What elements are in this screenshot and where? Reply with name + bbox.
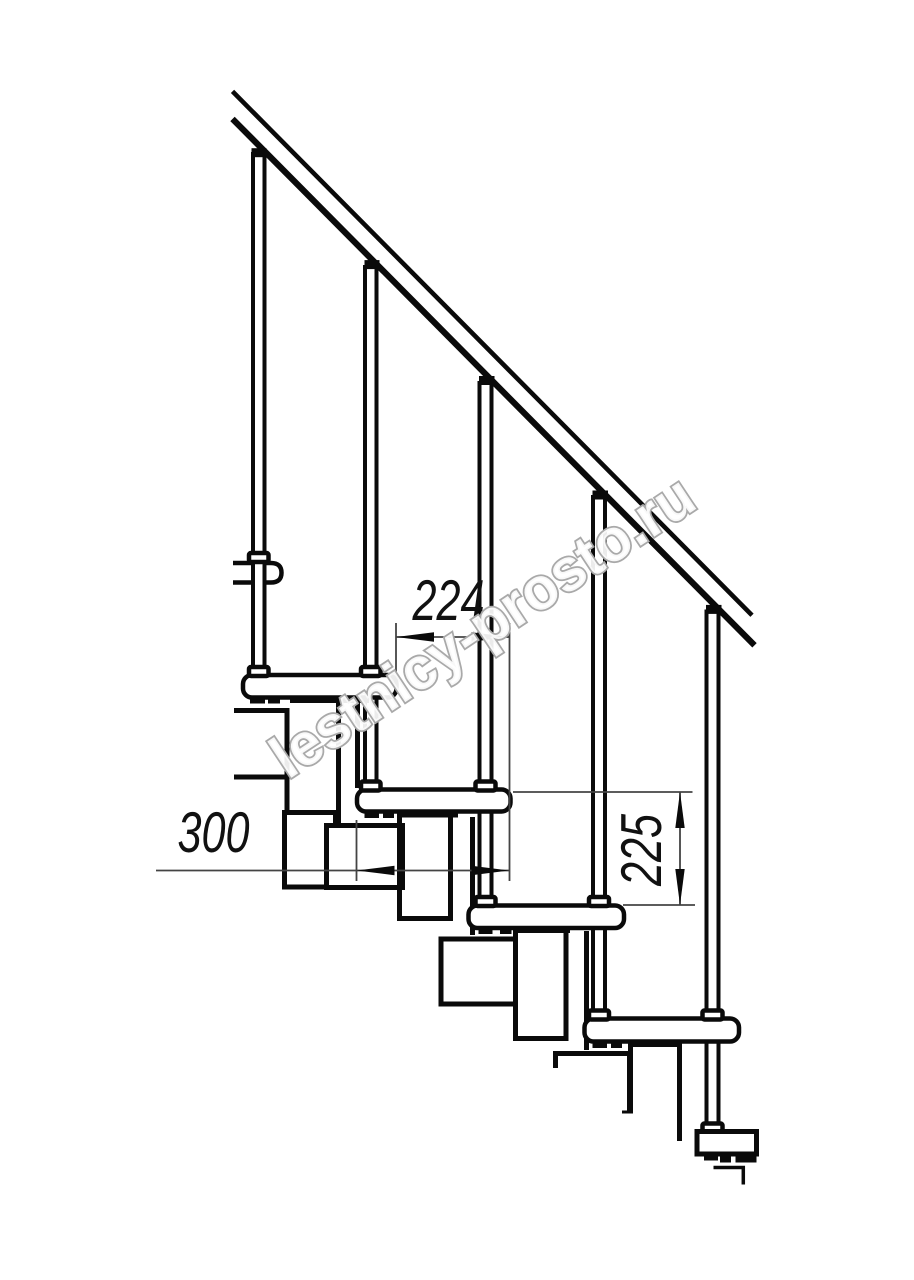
svg-text:225: 225 [609,813,673,886]
svg-text:300: 300 [178,800,250,864]
